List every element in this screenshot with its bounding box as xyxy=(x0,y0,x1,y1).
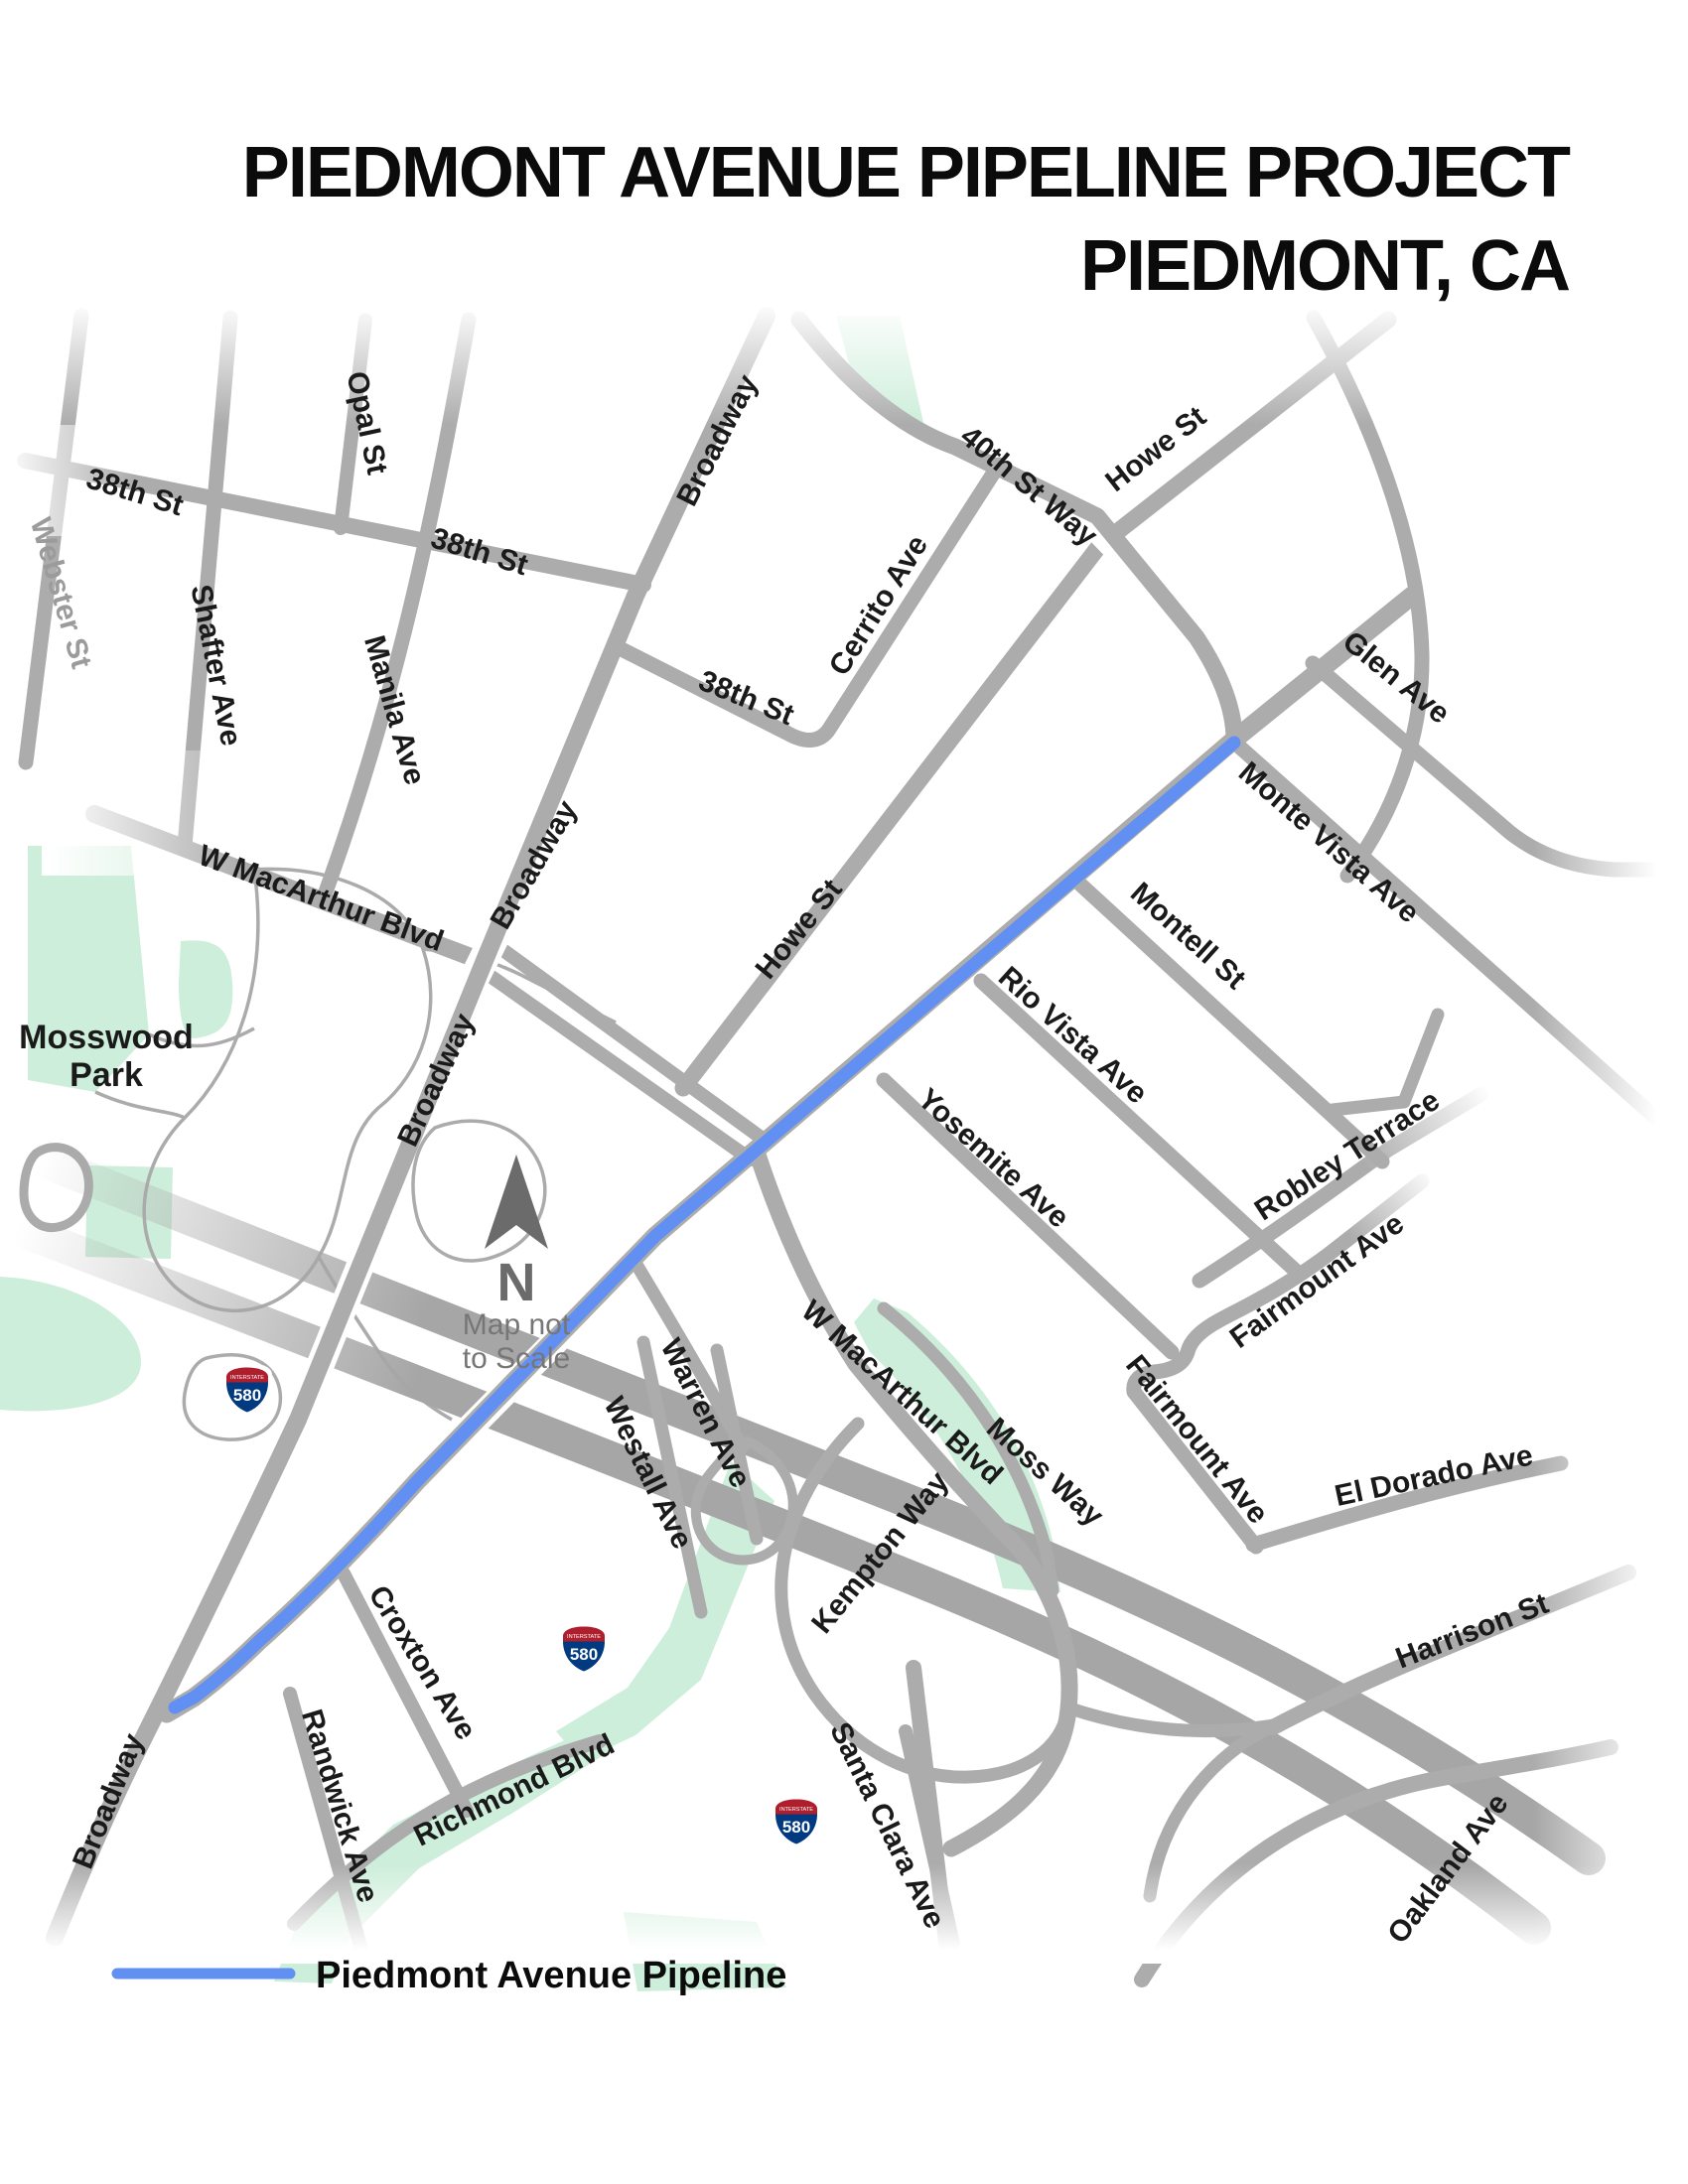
shield-interstate-text: INTERSTATE xyxy=(230,1375,264,1381)
page-title: PIEDMONT AVENUE PIPELINE PROJECT xyxy=(242,133,1571,212)
green-freeway-west xyxy=(0,1277,141,1411)
map-canvas: INTERSTATE580INTERSTATE580INTERSTATE580 … xyxy=(0,0,1688,2184)
street-label-broadway: Broadway xyxy=(67,1729,150,1874)
street-labels-layer: 38th St38th St38th StWebster StShafter A… xyxy=(19,368,1553,1950)
shield-route-number: 580 xyxy=(570,1645,598,1664)
shield-interstate-text: INTERSTATE xyxy=(779,1807,813,1813)
map-page: INTERSTATE580INTERSTATE580INTERSTATE580 … xyxy=(0,0,1688,2184)
street-label-broadway: Broadway xyxy=(485,795,584,935)
i580-shield-west: INTERSTATE580 xyxy=(224,1365,270,1415)
north-arrow-icon xyxy=(485,1155,548,1249)
shield-route-number: 580 xyxy=(233,1386,261,1405)
street-label-yosemite-ave: Yosemite Ave xyxy=(912,1082,1075,1234)
i580-shield-east: INTERSTATE580 xyxy=(774,1797,819,1846)
street-label-38th-st: 38th St xyxy=(427,522,531,583)
north-n-label: N xyxy=(497,1253,536,1312)
street-label-38th-st: 38th St xyxy=(694,664,798,732)
legend-pipeline-label: Piedmont Avenue Pipeline xyxy=(316,1955,786,1996)
street-label-mosswood: Mosswood xyxy=(19,1019,194,1056)
street-label-park: Park xyxy=(70,1056,143,1094)
map-scale-note-2: to Scale xyxy=(463,1342,570,1375)
street-label-el-dorado-ave: El Dorado Ave xyxy=(1332,1438,1535,1512)
fade-top xyxy=(0,296,1688,429)
map-scale-note-1: Map not xyxy=(463,1308,571,1341)
road-macarthur-pair-2 xyxy=(492,977,751,1160)
street-label-fairmount-ave: Fairmount Ave xyxy=(1119,1349,1274,1530)
road-rio-vista-ave xyxy=(981,981,1299,1274)
street-label-w-macarthur-blvd: W MacArthur Blvd xyxy=(194,839,448,958)
north-arrow: N Map not to Scale xyxy=(463,1155,571,1375)
page-subtitle: PIEDMONT, CA xyxy=(1080,226,1570,306)
shield-interstate-text: INTERSTATE xyxy=(567,1634,601,1640)
street-label-rio-vista-ave: Rio Vista Ave xyxy=(992,960,1154,1110)
fade-right xyxy=(1527,296,1688,1974)
street-label-howe-st: Howe St xyxy=(750,874,849,986)
street-label-glen-ave: Glen Ave xyxy=(1336,625,1456,731)
road-macarthur-pair-1 xyxy=(504,951,767,1142)
park-path xyxy=(95,1092,185,1118)
i580-shield-middle: INTERSTATE580 xyxy=(561,1624,607,1674)
shield-route-number: 580 xyxy=(782,1818,810,1837)
